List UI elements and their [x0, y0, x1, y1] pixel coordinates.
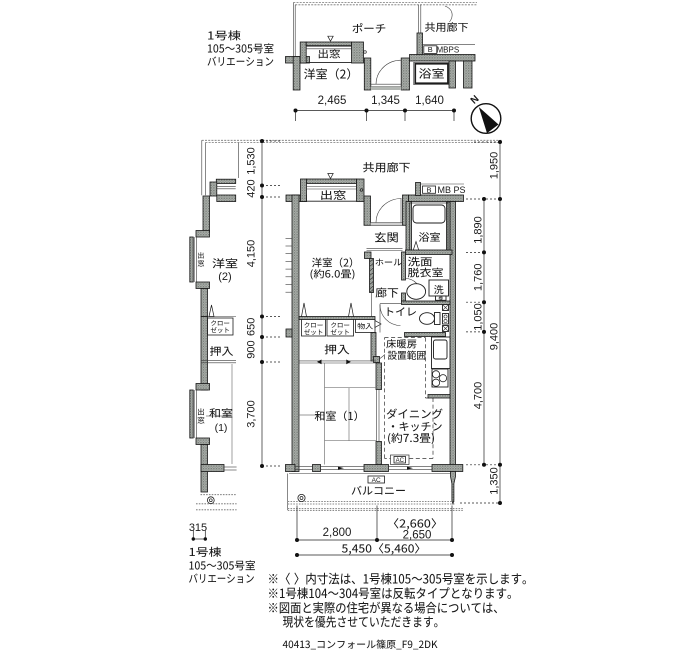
svg-text:420: 420: [246, 179, 258, 197]
svg-text:1,760: 1,760: [473, 264, 485, 292]
svg-text:MBPS: MBPS: [437, 46, 460, 55]
svg-text:B: B: [426, 185, 431, 194]
svg-text:2,650: 2,650: [403, 530, 432, 542]
svg-text:(2): (2): [218, 271, 231, 283]
svg-text:1,350: 1,350: [489, 467, 501, 495]
svg-text:315: 315: [189, 522, 207, 534]
svg-text:MB PS: MB PS: [438, 185, 466, 195]
svg-text:B: B: [428, 45, 433, 54]
svg-text:900: 900: [246, 340, 258, 358]
svg-text:2,800: 2,800: [323, 527, 352, 539]
svg-text:(1): (1): [215, 422, 228, 434]
svg-text:AC: AC: [396, 458, 405, 464]
svg-text:1,345: 1,345: [371, 95, 400, 107]
svg-text:3,700: 3,700: [246, 400, 258, 428]
svg-text:2,465: 2,465: [318, 95, 347, 107]
svg-text:1,640: 1,640: [415, 95, 444, 107]
svg-text:4,700: 4,700: [473, 382, 485, 410]
svg-text:650: 650: [246, 318, 258, 336]
svg-text:9,400: 9,400: [489, 323, 501, 351]
svg-text:1,950: 1,950: [489, 152, 501, 180]
svg-text:1,530: 1,530: [246, 147, 258, 175]
svg-text:AC: AC: [372, 477, 381, 484]
svg-text:1,890: 1,890: [473, 216, 485, 244]
svg-text:4,150: 4,150: [246, 240, 258, 268]
svg-text:1,050: 1,050: [473, 303, 485, 331]
